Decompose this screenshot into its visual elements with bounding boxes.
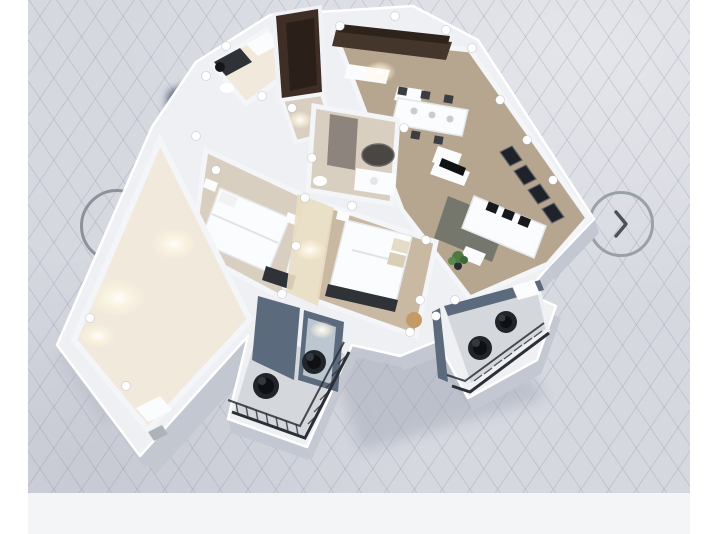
bed-master [325, 220, 412, 312]
coffee-table [460, 246, 486, 266]
bottom-band [28, 493, 690, 534]
headboard [262, 266, 296, 290]
balcony-2 [432, 280, 549, 392]
tv-stand [430, 160, 470, 186]
nightstand [336, 210, 350, 222]
toilet [220, 83, 234, 93]
balcony-chair [468, 336, 492, 360]
balcony-wall [298, 310, 344, 392]
chevron-left-icon [104, 208, 130, 244]
balcony-railing [447, 323, 549, 392]
room-living-space [74, 140, 250, 441]
nightstand [203, 178, 218, 192]
kitchen-desk [394, 86, 424, 104]
pillow [387, 252, 406, 268]
balcony-wall [252, 296, 300, 380]
entry-hall-floor [282, 94, 334, 142]
room-kitchen-living [332, 24, 588, 298]
plant [448, 251, 468, 270]
floorplan-viewer-page [0, 0, 720, 534]
entry-door [272, 5, 327, 105]
bathroom-door [327, 114, 358, 170]
round-stool [406, 312, 422, 328]
balcony-chair [253, 373, 279, 399]
dining-table [387, 86, 468, 144]
next-button[interactable] [588, 191, 654, 257]
pillow [218, 191, 238, 208]
prev-button[interactable] [80, 189, 154, 263]
living-room [430, 146, 546, 270]
hallway [286, 194, 334, 306]
vanity [354, 168, 396, 196]
floor-glows [288, 61, 396, 339]
armchair [432, 146, 462, 170]
balcony-wall [432, 308, 448, 382]
balcony-bench [512, 280, 540, 300]
room-bathroom [308, 106, 398, 204]
kitchen-cabinets [332, 30, 452, 60]
windows [500, 146, 564, 223]
north-east-wall-face [450, 46, 588, 240]
rug [434, 196, 508, 262]
left-margin [0, 0, 28, 534]
floorplan-3d-viewport[interactable] [28, 0, 690, 493]
balcony-wall [444, 280, 544, 316]
cabinet [136, 396, 172, 422]
room-master-bedroom [314, 206, 436, 336]
sliding-door [303, 318, 336, 384]
ceiling-lights [86, 12, 558, 391]
balcony-1 [228, 296, 349, 440]
toilet [313, 176, 327, 186]
cast-shadow [56, 76, 548, 452]
balcony-chair [302, 350, 326, 374]
kitchen-counter [344, 64, 390, 84]
tv [439, 158, 466, 176]
cabinet [246, 32, 280, 56]
room-laundry-bathroom [212, 30, 300, 104]
pillow [391, 238, 410, 254]
washing-machine [214, 48, 252, 76]
nightstand [285, 212, 300, 226]
balcony-railing [228, 342, 349, 438]
room-bedroom [192, 150, 308, 298]
doormat [148, 425, 168, 441]
sofa [462, 196, 546, 258]
round-mirror [362, 144, 394, 166]
balcony-chair [495, 311, 517, 333]
right-margin [690, 0, 720, 534]
bed-second [200, 188, 296, 290]
headboard [325, 284, 398, 312]
chevron-right-icon [609, 207, 633, 241]
